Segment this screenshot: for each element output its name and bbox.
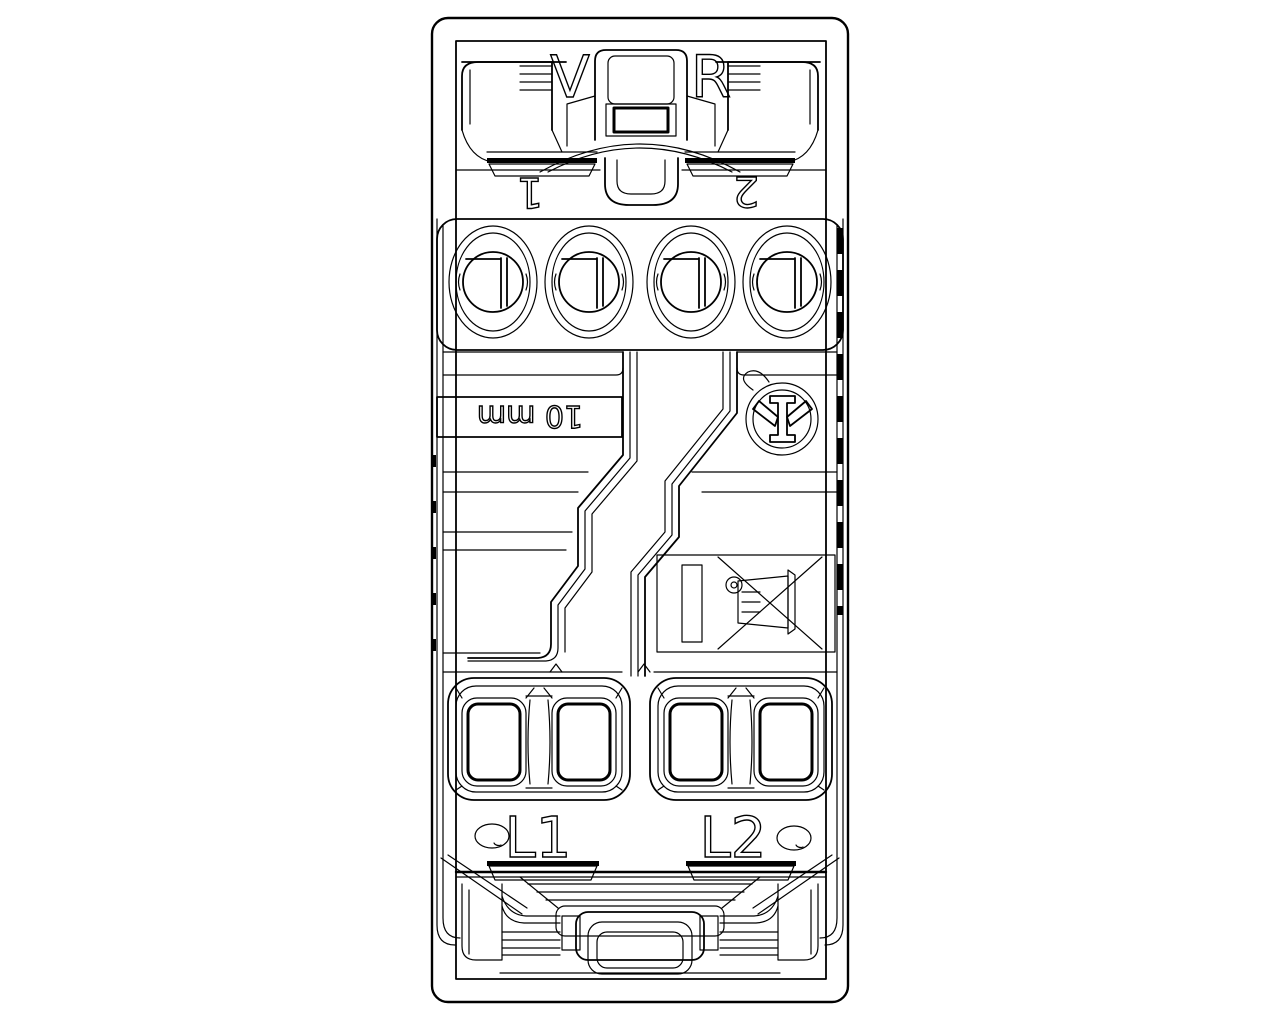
top-clip-face [608, 56, 674, 104]
terminal-opening [449, 226, 537, 338]
top-clip-outer [595, 50, 687, 140]
left-wing-hatch [470, 66, 552, 124]
rib-b [443, 472, 837, 492]
top-latch-section: V R [456, 43, 826, 205]
bottom-clip [520, 877, 760, 974]
right-hatch [720, 932, 778, 955]
right-lower-dark-bar [686, 861, 796, 866]
lower-terminal-block-left [448, 678, 630, 800]
right-oval-hole [777, 826, 811, 850]
right-wing-hatch [728, 66, 810, 124]
top-clip-slot [614, 108, 668, 132]
left-wall-outer [437, 219, 455, 945]
terminal-number-2: 2 [733, 167, 760, 216]
terminal-opening [647, 226, 735, 338]
terminal-opening [743, 226, 831, 338]
lower-terminal-blocks [448, 664, 832, 800]
imq-certification-mark [744, 371, 818, 455]
left-wing [462, 62, 552, 130]
brand-letter-left: V [550, 43, 590, 111]
lower-terminal-block-right [650, 678, 832, 800]
switch-rear-view-drawing: V R 1 2 [0, 0, 1280, 1024]
terminal-number-1: 1 [517, 168, 544, 217]
bottom-latch-section [441, 855, 839, 974]
outer-frame [432, 18, 848, 1002]
technical-drawing-page: V R 1 2 [0, 0, 1280, 1024]
outer-outline [432, 18, 848, 1002]
terminal-openings [449, 226, 831, 338]
right-wing [728, 62, 818, 130]
right-shoulder [718, 130, 818, 162]
weee-bar [682, 565, 702, 642]
brand-letter-right: R [691, 43, 731, 111]
left-shoulder [462, 130, 562, 162]
strip-length-label: 10 mm [477, 398, 583, 433]
right-dark-bar [685, 158, 795, 163]
weee-panel [657, 555, 835, 652]
u-hook-inner [617, 160, 665, 194]
left-lower-dark-bar [487, 861, 599, 866]
load-label-row: L1 L2 [475, 806, 811, 880]
weee-crossed-out-bin-icon [682, 557, 822, 649]
left-hatch [502, 932, 560, 955]
terminal-opening [545, 226, 633, 338]
left-wall-inner [443, 225, 460, 938]
block-top-notches [550, 664, 650, 672]
terminal-number-row: 1 2 [517, 167, 760, 217]
u-hook-outer [605, 158, 678, 205]
rib-left-small [443, 532, 572, 550]
left-dark-bar [487, 158, 597, 163]
upper-terminal-block [437, 219, 843, 350]
middle-section: 10 mm [437, 352, 837, 676]
rib-a [443, 352, 837, 375]
